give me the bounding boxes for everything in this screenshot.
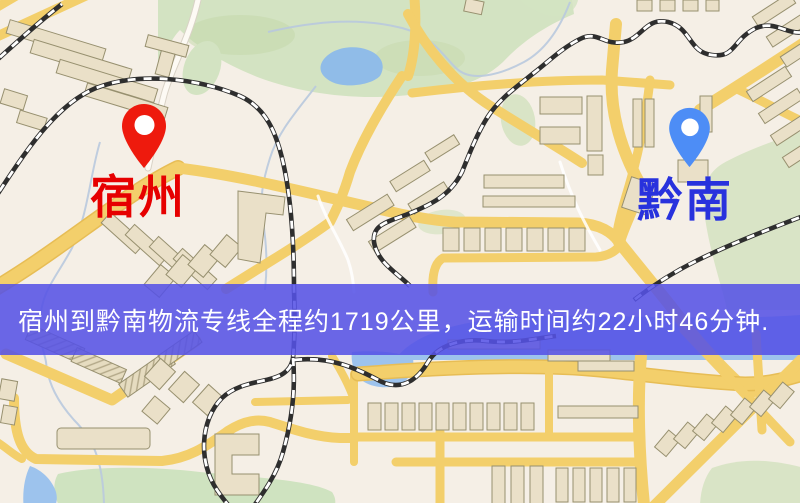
destination-pin-icon — [667, 107, 712, 168]
destination-city-label: 黔南 — [637, 177, 733, 223]
origin-pin-icon — [121, 103, 167, 169]
route-info-text: 宿州到黔南物流专线全程约1719公里，运输时间约22小时46分钟. — [0, 302, 769, 338]
map-canvas[interactable] — [0, 0, 800, 503]
origin-marker[interactable] — [121, 103, 167, 169]
destination-marker[interactable] — [667, 107, 712, 168]
origin-city-label: 宿州 — [90, 174, 186, 220]
route-info-banner: 宿州到黔南物流专线全程约1719公里，运输时间约22小时46分钟. — [0, 284, 800, 355]
map-screenshot: 宿州 黔南 宿州到黔南物流专线全程约1719公里，运输时间约22小时46分钟. — [0, 0, 800, 503]
